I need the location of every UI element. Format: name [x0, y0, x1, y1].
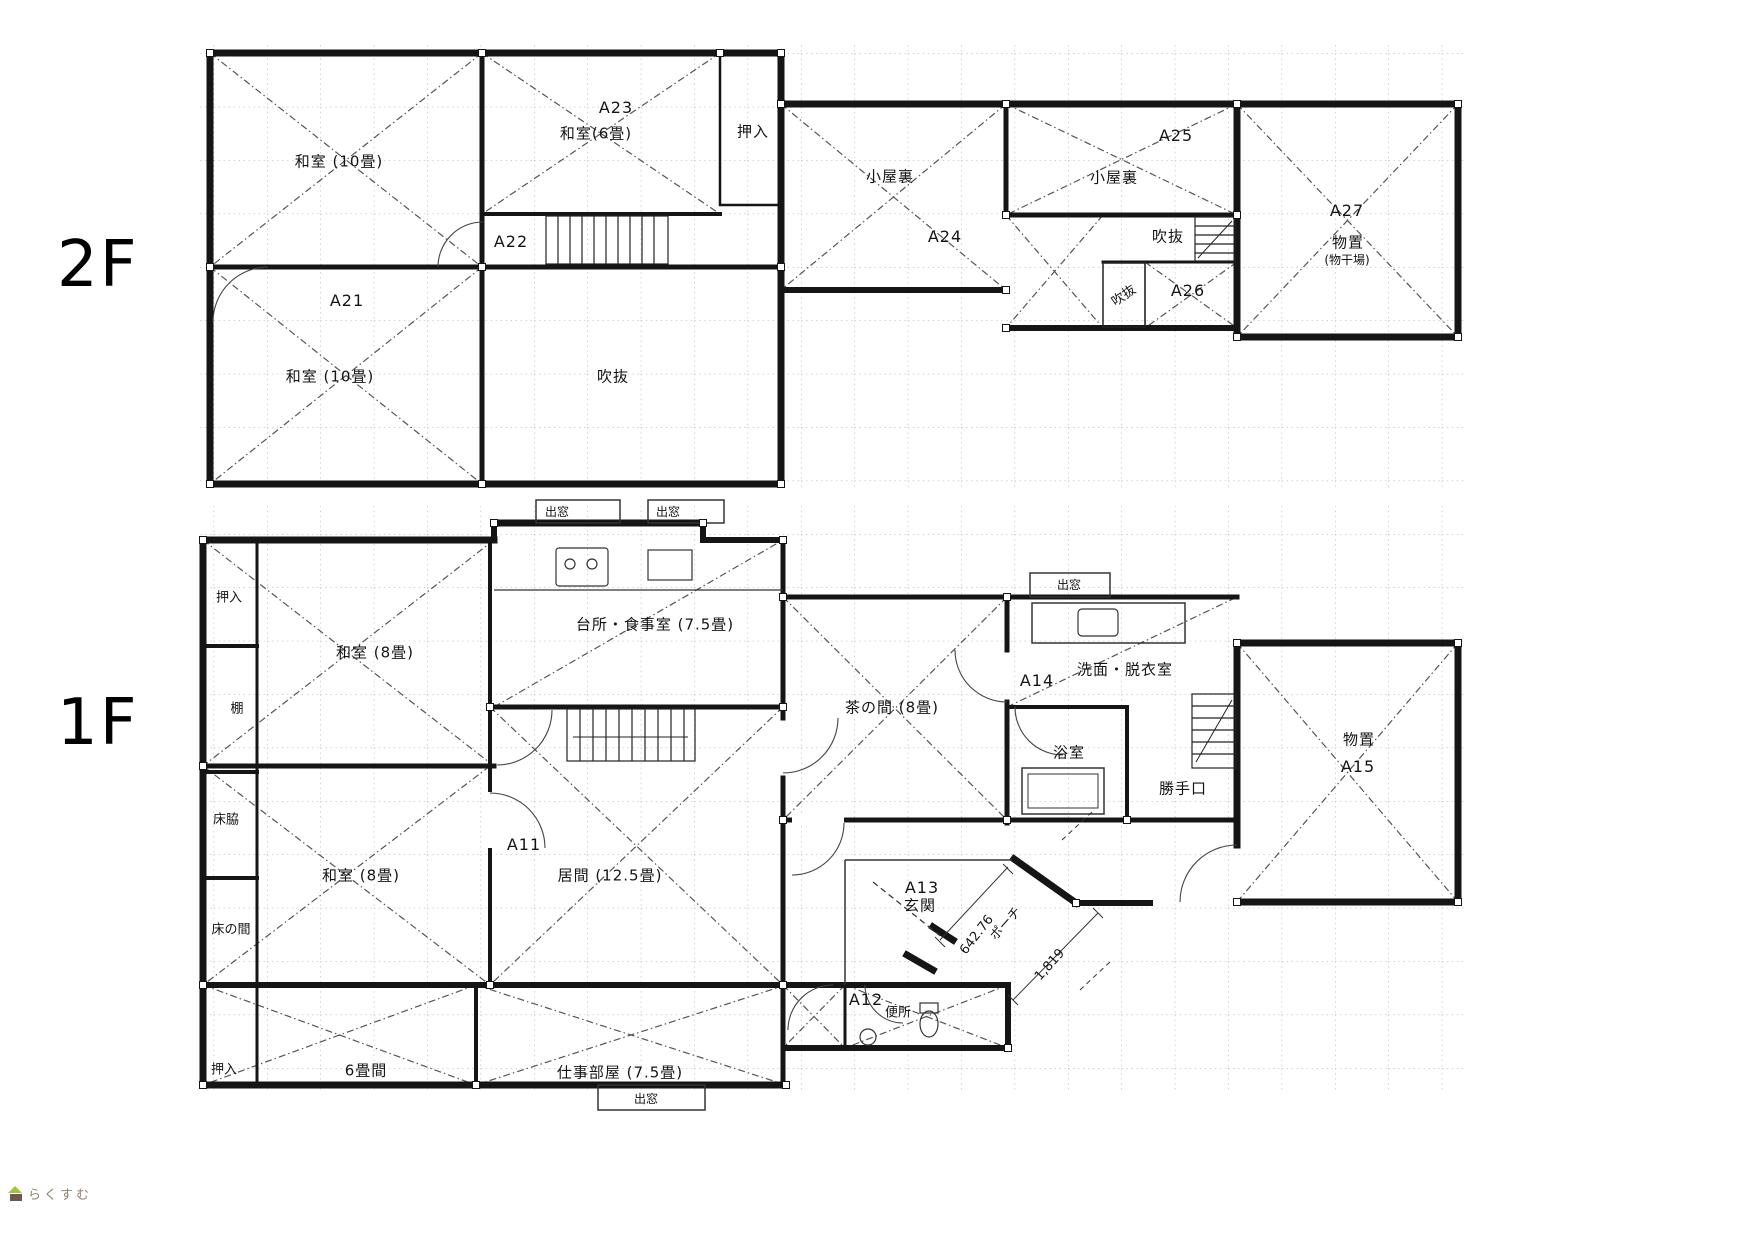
- area-code-a21: A21: [330, 293, 364, 309]
- area-code-a15: A15: [1341, 759, 1375, 775]
- room-label-1f-kitchen-dining: 台所・食事室 (7.5畳): [576, 618, 734, 633]
- area-code-a24: A24: [928, 229, 962, 245]
- room-label-1f-rokujoma: 6畳間: [345, 1064, 388, 1079]
- floor-plan-page: 2F 1F 和室 (10畳) A23 和室(6畳) 押入 A22 A21 和室 …: [0, 0, 1755, 1241]
- room-label-1f-benjo: 便所: [885, 1007, 911, 1020]
- area-code-a13: A13: [905, 880, 939, 896]
- room-label-2f-fukinuke-stair: 吹抜: [1152, 230, 1184, 245]
- watermark-text: らくすむ: [28, 1184, 92, 1203]
- room-label-2f-fukinuke-main: 吹抜: [597, 370, 629, 385]
- room-label-1f-shigotobeya: 仕事部屋 (7.5畳): [557, 1066, 683, 1081]
- room-label-1f-ima: 居間 (12.5畳): [558, 869, 663, 884]
- area-code-a12: A12: [849, 992, 883, 1008]
- room-label-2f-washitsu6: 和室(6畳): [560, 127, 632, 142]
- room-label-1f-genkan: 玄関: [904, 899, 936, 914]
- room-label-2f-monohoshiba: (物干場): [1324, 254, 1369, 266]
- room-label-2f-koyaura-right: 小屋裏: [1090, 171, 1138, 186]
- floor-label-2f: 2F: [57, 228, 139, 302]
- area-code-a23: A23: [599, 100, 633, 116]
- room-label-1f-washitsu8-upper: 和室 (8畳): [336, 646, 414, 661]
- room-label-1f-oshiire-bottom: 押入: [211, 1064, 237, 1077]
- bay-window-label-bottom: 出窓: [634, 1093, 658, 1105]
- area-code-a22: A22: [494, 234, 528, 250]
- grid-1f: [198, 506, 1466, 1090]
- room-label-1f-tana: 棚: [230, 703, 243, 716]
- watermark: らくすむ: [8, 1184, 92, 1203]
- room-label-1f-yokushitsu: 浴室: [1053, 746, 1085, 761]
- area-code-a14: A14: [1020, 673, 1054, 689]
- house-icon: [8, 1186, 23, 1201]
- area-code-a11: A11: [507, 837, 541, 853]
- room-label-1f-chanoma: 茶の間 (8畳): [845, 701, 939, 716]
- room-label-1f-monooki: 物置: [1343, 733, 1375, 748]
- floor-plan-drawing: [0, 0, 1755, 1241]
- room-label-2f-koyaura-left: 小屋裏: [866, 170, 914, 185]
- room-label-1f-tokonoma: 床の間: [211, 924, 250, 937]
- room-label-1f-tokowaki: 床脇: [213, 814, 239, 827]
- room-label-2f-oshiire: 押入: [737, 125, 769, 140]
- room-label-1f-washitsu8-lower: 和室 (8畳): [322, 869, 400, 884]
- room-label-1f-oshiire-top: 押入: [216, 592, 242, 605]
- room-label-1f-senmen-datsuiishitsu: 洗面・脱衣室: [1077, 663, 1173, 678]
- bay-window-label-kitchen-left: 出窓: [545, 506, 569, 518]
- room-label-2f-washitsu10-lower: 和室 (10畳): [286, 370, 375, 385]
- room-label-1f-katteguchi: 勝手口: [1159, 782, 1207, 797]
- area-code-a26: A26: [1171, 283, 1205, 299]
- bay-window-label-kitchen-right: 出窓: [656, 506, 680, 518]
- floor-label-1f: 1F: [57, 686, 139, 760]
- room-label-2f-monooki: 物置: [1332, 236, 1364, 251]
- area-code-a25: A25: [1159, 128, 1193, 144]
- area-code-a27: A27: [1330, 203, 1364, 219]
- room-label-2f-washitsu10-upper: 和室 (10畳): [295, 155, 384, 170]
- bay-window-label-washroom: 出窓: [1057, 579, 1081, 591]
